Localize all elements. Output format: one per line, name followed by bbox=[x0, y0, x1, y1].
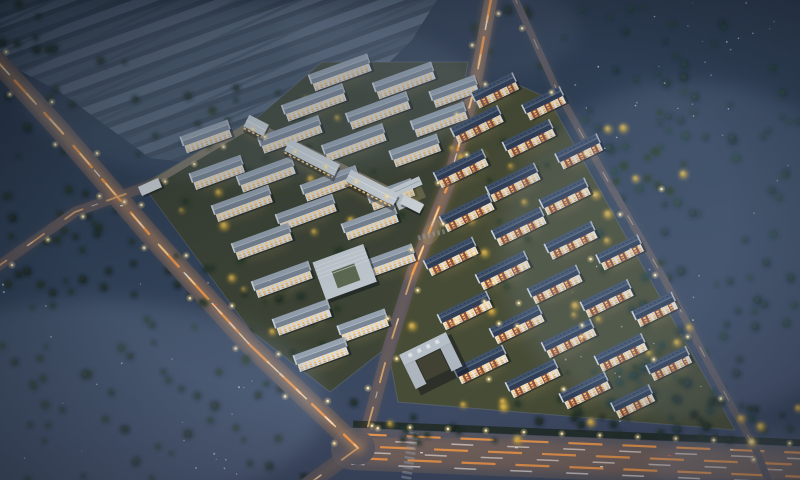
vignette bbox=[0, 0, 800, 480]
aerial-night-rendering bbox=[0, 0, 800, 480]
night-aerial-scene bbox=[0, 0, 800, 480]
